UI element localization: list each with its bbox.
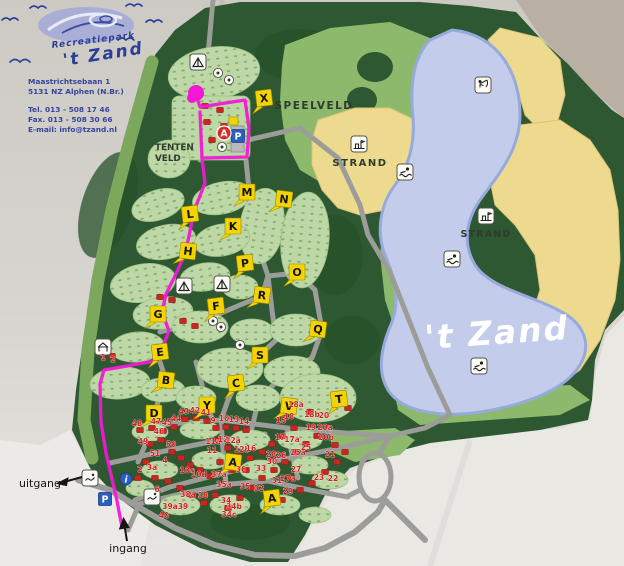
info-icon: i — [120, 473, 132, 485]
holiday-house — [223, 424, 230, 429]
site-number-48: 48 — [132, 419, 142, 428]
site-number-2: 2 — [137, 465, 142, 474]
site-number-46: 46 — [154, 427, 164, 436]
site-number-39a: 39a — [162, 502, 178, 511]
holiday-house — [332, 442, 339, 447]
holiday-house — [342, 449, 349, 454]
svg-text:A: A — [220, 129, 228, 140]
site-number-4: 4 — [162, 456, 167, 465]
site-number-39: 39 — [178, 502, 188, 511]
fishing-icon — [475, 77, 491, 93]
svg-text:O: O — [292, 266, 301, 279]
site-number-27a: 27a — [280, 474, 296, 483]
holiday-house — [233, 425, 240, 430]
you-are-here-dot-blob — [187, 93, 197, 103]
site-number-29: 29 — [283, 487, 293, 496]
svg-text:M: M — [242, 186, 253, 199]
parking-icon: P — [232, 130, 245, 143]
site-number-30: 30 — [267, 457, 277, 466]
site-number-35a: 35a — [216, 480, 232, 489]
site-number-16: 16 — [246, 444, 256, 453]
swimming-icon — [444, 251, 460, 267]
speelveld-label: SPEELVELD — [274, 100, 353, 112]
holiday-house — [259, 475, 266, 480]
dot-icon — [213, 68, 222, 77]
park-map-photo: PPiA XMNLKHPORFGQESBCYVTDAA 484746454443… — [0, 0, 624, 566]
sandcastle-icon — [478, 208, 494, 224]
svg-text:S: S — [256, 349, 264, 362]
site-number-42: 42 — [190, 406, 200, 415]
site-number-19: 19 — [306, 423, 316, 432]
holiday-house — [178, 455, 185, 460]
dot-icon — [224, 75, 233, 84]
site-number-25a: 25a — [290, 448, 306, 457]
site-number-49: 49 — [138, 437, 148, 446]
holiday-house — [282, 459, 289, 464]
holiday-house — [247, 455, 254, 460]
holiday-house — [157, 294, 164, 299]
svg-text:B: B — [161, 374, 171, 388]
site-number-3a: 3a — [147, 463, 157, 472]
holiday-house — [243, 427, 250, 432]
address-block: Maastrichtsebaan 1 5131 NZ Alphen (N.Br.… — [28, 77, 124, 134]
tentenveld-label-line2: VELD — [155, 154, 181, 164]
sandcastle-icon — [351, 136, 367, 152]
site-number-17a: 17a — [284, 435, 300, 444]
site-number-21: 21 — [325, 450, 335, 459]
holiday-house — [209, 137, 216, 142]
holiday-house — [135, 475, 142, 480]
tent-icon — [176, 278, 192, 294]
holiday-house — [182, 416, 189, 421]
site-number-2: 2 — [110, 355, 115, 364]
reception-icon: A — [217, 126, 231, 140]
board-icon — [82, 470, 98, 486]
svg-text:G: G — [153, 308, 162, 321]
svg-text:N: N — [279, 192, 290, 206]
holiday-house — [201, 500, 208, 505]
site-number-33: 33 — [256, 464, 266, 473]
site-number-20: 20 — [319, 411, 329, 420]
site-number-51: 51 — [150, 449, 160, 458]
dot-icon — [217, 142, 226, 151]
holiday-house — [204, 119, 211, 124]
svg-text:P: P — [240, 257, 250, 271]
tent-icon — [190, 54, 206, 70]
holiday-house — [259, 449, 266, 454]
phone-line: Tel. 013 - 508 17 46 — [28, 105, 110, 114]
site-number-11: 11 — [207, 446, 217, 455]
swimming-icon — [471, 358, 487, 374]
holiday-house — [297, 487, 304, 492]
swimming-icon — [397, 164, 413, 180]
fax-line: Fax. 013 - 508 30 66 — [28, 115, 113, 124]
exit-label: uitgang — [19, 477, 61, 490]
site-number-38: 38 — [198, 491, 208, 500]
holiday-house — [137, 427, 144, 432]
strand-west-label: STRAND — [332, 158, 387, 169]
strand-east-label: STRAND — [460, 229, 511, 240]
holiday-house — [269, 441, 276, 446]
site-number-26: 26 — [276, 451, 286, 460]
park-map-svg: PPiA XMNLKHPORFGQESBCYVTDAA 484746454443… — [0, 0, 624, 566]
holiday-house — [165, 478, 172, 483]
site-number-20a: 20a — [317, 423, 333, 432]
holiday-house — [152, 475, 159, 480]
holiday-house — [217, 107, 224, 112]
tent-icon — [214, 276, 230, 292]
site-number-6: 6 — [154, 485, 159, 494]
site-number-9: 9 — [210, 416, 215, 425]
site-number-12a: 12a — [225, 436, 241, 445]
holiday-house — [217, 459, 224, 464]
svg-text:P: P — [102, 495, 109, 506]
site-number-27: 27 — [291, 465, 301, 474]
svg-text:C: C — [231, 377, 241, 391]
holiday-house — [271, 467, 278, 472]
site-number-34c: 34c — [222, 510, 237, 519]
site-number-1: 1 — [100, 353, 105, 362]
site-number-20b: 20b — [318, 433, 334, 442]
holiday-house — [169, 297, 176, 302]
holiday-house — [212, 492, 219, 497]
holiday-house — [204, 418, 211, 423]
holiday-house — [237, 495, 244, 500]
site-number-22: 22 — [328, 474, 338, 483]
svg-text:E: E — [156, 346, 165, 360]
svg-text:F: F — [212, 300, 221, 314]
site-number-18a: 18a — [288, 400, 304, 409]
site-number-37a: 37a — [211, 470, 227, 479]
svg-text:H: H — [183, 244, 194, 258]
svg-text:Q: Q — [313, 322, 324, 336]
holiday-house — [225, 445, 232, 450]
address-line-1: Maastrichtsebaan 1 — [28, 77, 110, 86]
site-number-35: 35 — [240, 482, 250, 491]
holiday-house — [180, 318, 187, 323]
holiday-house — [213, 425, 220, 430]
holiday-house — [334, 459, 341, 464]
site-number-18: 18 — [284, 412, 294, 421]
holiday-house — [192, 323, 199, 328]
holiday-house — [169, 449, 176, 454]
tentenveld-label-line1: TENTEN — [155, 143, 194, 153]
site-number-36: 36 — [236, 465, 246, 474]
parking-icon: P — [99, 493, 112, 506]
email-line: E-mail: info@tzand.nl — [28, 125, 117, 134]
site-number-32: 32 — [254, 484, 264, 493]
site-number-13: 13 — [229, 415, 239, 424]
site-number-38a: 38a — [180, 490, 196, 499]
holiday-house — [291, 425, 298, 430]
dot-icon — [216, 322, 225, 331]
site-number-43: 43 — [179, 407, 189, 416]
site-number-40: 40 — [159, 511, 169, 520]
svg-text:K: K — [229, 220, 238, 233]
address-line-2: 5131 NZ Alphen (N.Br.) — [28, 87, 124, 96]
site-number-47: 47 — [151, 417, 161, 426]
site-number-10d: 10d — [191, 470, 207, 479]
site-number-23: 23 — [314, 473, 324, 482]
entrance-label: ingang — [109, 542, 147, 555]
site-number-50: 50 — [166, 440, 176, 449]
holiday-house — [158, 437, 165, 442]
site-number-14: 14 — [239, 417, 249, 426]
svg-text:P: P — [235, 132, 242, 143]
dot-icon — [235, 340, 244, 349]
site-number-10: 10 — [219, 414, 229, 423]
